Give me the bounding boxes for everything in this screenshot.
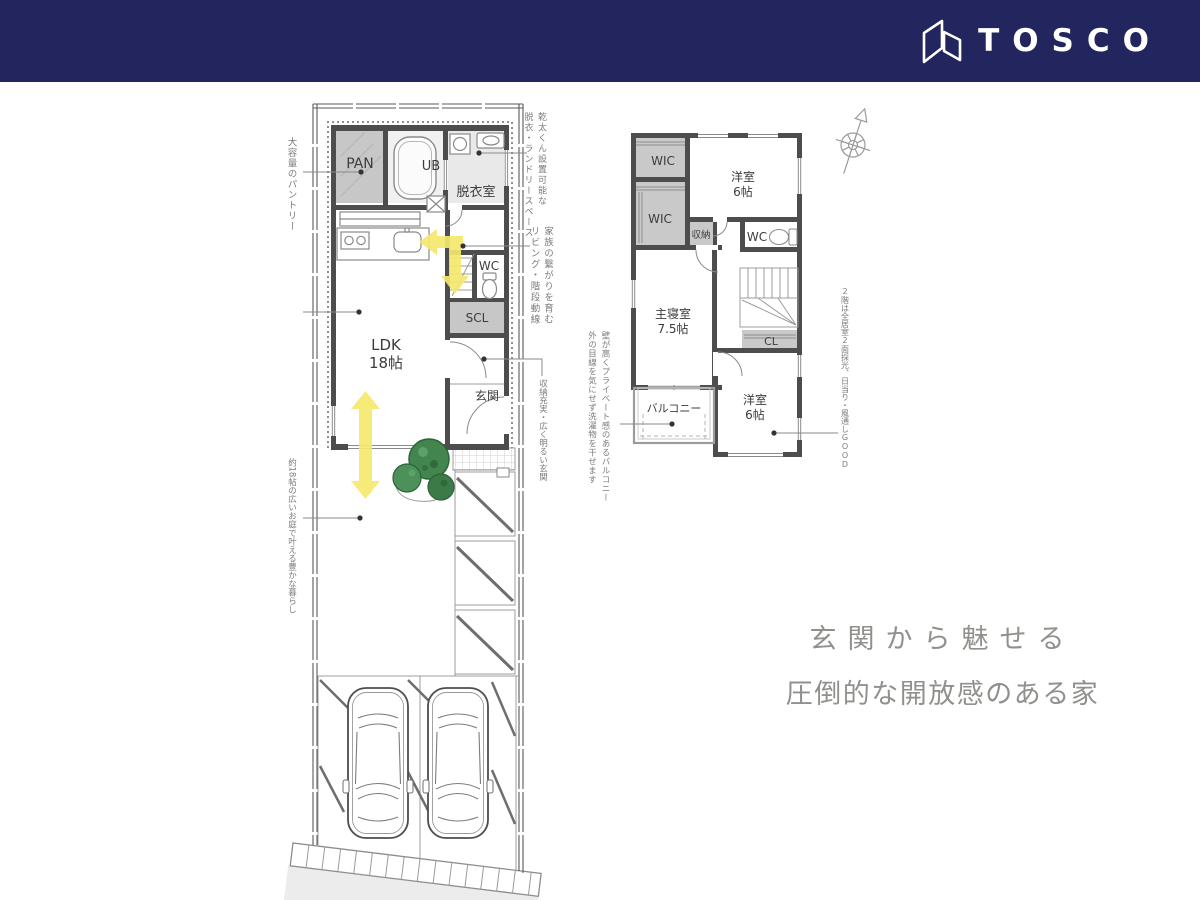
label-entrance: 玄関 xyxy=(475,388,499,403)
label-closet: CL xyxy=(764,335,779,348)
label-ldk: LDK xyxy=(371,336,402,354)
flyer-page: TOSCO xyxy=(0,0,1200,900)
label-balcony: バルコニー xyxy=(647,402,702,415)
label-bedroom2: 洋室 xyxy=(743,392,767,407)
note-pantry: 大容量のパントリー xyxy=(284,137,298,245)
label-wic-a: WIC xyxy=(651,154,675,168)
note-daylight: 2階は全居室2面採光、日当り・風通しGOOD xyxy=(838,287,852,487)
label-master-bedroom: 主寝室 xyxy=(655,306,691,321)
label-dressing-room: 脱衣室 xyxy=(456,184,495,200)
label-bedroom1: 洋室 xyxy=(731,169,755,184)
note-garden: 約18帖の広いお庭で叶える豊かな暮らし xyxy=(284,458,298,623)
catch-copy-line1: 玄関から魅せる xyxy=(770,617,1115,656)
note-balcony-private: 壁が高くプライベート感のあるバルコニー 外の目線を気にせず洗濯物を干せます xyxy=(584,331,611,521)
car-2 xyxy=(423,688,493,838)
catch-copy: 玄関から魅せる 圧倒的な開放感のある家 xyxy=(770,617,1115,711)
label-bedroom2-size: 6帖 xyxy=(745,407,765,422)
label-pantry: PAN xyxy=(346,156,374,172)
car-1 xyxy=(343,688,413,838)
label-bedroom1-size: 6帖 xyxy=(733,184,753,199)
label-storage: 収納 xyxy=(691,229,710,241)
label-bath: UB xyxy=(422,159,440,174)
label-shoe-closet: SCL xyxy=(466,311,489,325)
label-wc-1f: WC xyxy=(479,259,499,273)
label-wic-b: WIC xyxy=(648,212,672,226)
note-entrance: 収納充実・広く明るい玄関 xyxy=(535,379,549,494)
label-master-size: 7.5帖 xyxy=(657,321,688,336)
label-ldk-size: 18帖 xyxy=(369,354,403,372)
compass-icon xyxy=(827,103,882,179)
parking-area xyxy=(318,676,519,870)
approach-strip xyxy=(453,448,515,676)
label-wc-2f: WC xyxy=(747,230,767,244)
catch-copy-line2: 圧倒的な開放感のある家 xyxy=(770,672,1115,711)
note-living-stairs: 家族の繋がりを育む リビング・階段動線 xyxy=(527,226,554,341)
road-sidewalk xyxy=(282,843,541,900)
